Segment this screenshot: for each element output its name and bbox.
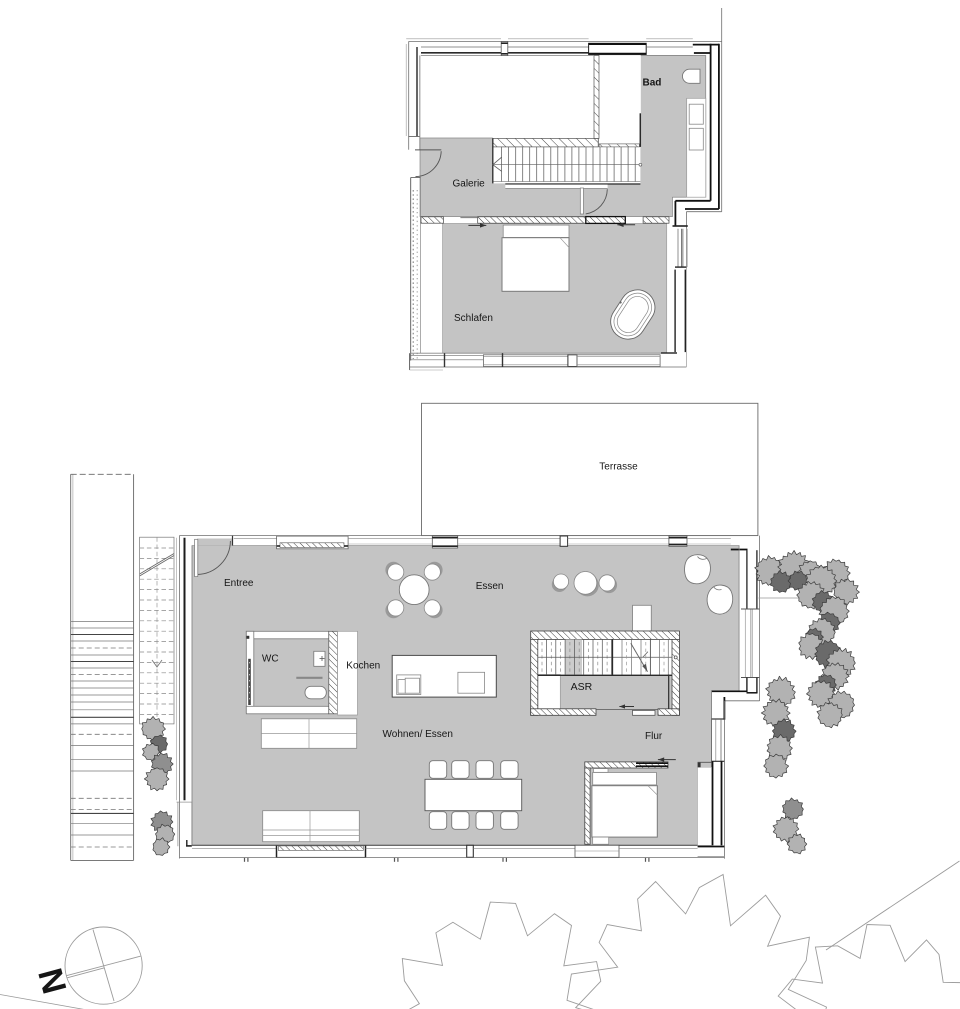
svg-text:Wohnen/ Essen: Wohnen/ Essen (383, 729, 453, 740)
svg-text:ASR: ASR (571, 681, 593, 693)
svg-text:Entree: Entree (224, 578, 254, 589)
svg-text:Bad: Bad (643, 78, 662, 89)
svg-text:Galerie: Galerie (453, 179, 486, 190)
svg-text:Kochen: Kochen (346, 660, 380, 671)
svg-text:Terrasse: Terrasse (599, 462, 638, 473)
svg-text:Flur: Flur (645, 731, 663, 742)
svg-text:Essen: Essen (476, 581, 504, 592)
svg-text:WC: WC (262, 653, 279, 664)
svg-text:Schlafen: Schlafen (454, 313, 493, 324)
